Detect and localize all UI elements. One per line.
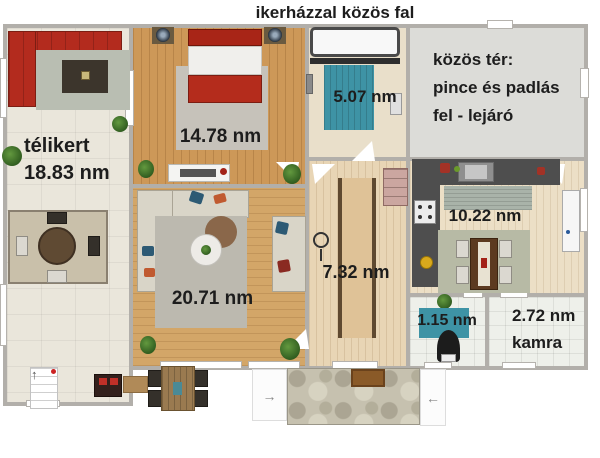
- window: [0, 284, 7, 346]
- common-space-line3: fel - lejáró: [433, 102, 560, 130]
- bed-blanket: [188, 75, 262, 103]
- door-gap: [580, 68, 589, 98]
- pillow: [142, 246, 154, 256]
- window: [580, 188, 588, 232]
- door-gap: [487, 20, 513, 29]
- pillow: [277, 259, 291, 273]
- chair: [47, 270, 67, 283]
- plant-icon: [138, 160, 154, 178]
- fridge: [562, 190, 580, 252]
- stairs-marker: [51, 369, 56, 374]
- winter-garden-area: 18.83 nm: [24, 160, 110, 187]
- walkway-right: ←: [420, 369, 446, 426]
- winter-garden-label: télikert 18.83 nm: [24, 133, 110, 187]
- door-swing: [312, 164, 335, 187]
- pantry-name: kamra: [512, 329, 575, 356]
- speaker-icon: [268, 28, 282, 42]
- runner-rug: [338, 178, 376, 338]
- pantry-area: 2.72 nm: [512, 302, 575, 329]
- common-space-label: közös tér: pince és padlás fel - lejáró: [433, 46, 560, 130]
- laptop-icon: [180, 169, 216, 177]
- bedroom-area-label: 14.78 nm: [173, 126, 268, 148]
- grill-food: [110, 378, 118, 385]
- window: [502, 362, 536, 369]
- plant-icon: [2, 146, 22, 166]
- toilet-base: [441, 354, 456, 362]
- bathroom-area-label: 5.07 nm: [325, 87, 405, 107]
- plant-icon: [140, 336, 156, 354]
- table-decor: [81, 71, 90, 80]
- side-table: [123, 376, 148, 393]
- outdoor-table-decor: [173, 382, 182, 395]
- red-corner-sofa-arm: [8, 31, 36, 107]
- plant-icon: [280, 338, 300, 360]
- stove: [414, 200, 436, 224]
- grill-food: [99, 378, 107, 385]
- shared-wall-label: ikerházzal közös fal: [243, 3, 427, 23]
- common-space-line1: közös tér:: [433, 46, 560, 74]
- coat-stand-icon: [313, 232, 329, 248]
- stove-burners: [418, 205, 422, 209]
- outdoor-chair: [194, 370, 208, 387]
- chair: [88, 236, 100, 256]
- arrow-up-icon: ↑: [31, 368, 38, 381]
- chair: [499, 240, 512, 258]
- chair: [499, 266, 512, 284]
- radiator: [306, 74, 313, 94]
- table-decor: [481, 258, 487, 268]
- fruit: [454, 166, 460, 172]
- bathtub: [310, 27, 400, 57]
- kitchen-area-label: 10.22 nm: [440, 206, 530, 226]
- round-table: [38, 227, 76, 265]
- pot: [537, 167, 545, 175]
- floor-plan: ikerházzal közös fal: [0, 0, 600, 458]
- plant-icon: [437, 294, 452, 309]
- pillow: [275, 221, 289, 235]
- plant-icon: [112, 116, 128, 132]
- speaker-icon: [156, 28, 170, 42]
- common-space-line2: pince és padlás: [433, 74, 560, 102]
- chair: [16, 236, 28, 256]
- pot: [440, 163, 450, 173]
- outdoor-chair: [194, 390, 208, 407]
- arrow-right-icon: →: [263, 388, 277, 404]
- window: [424, 362, 452, 369]
- doormat: [351, 369, 385, 387]
- winter-garden-name: télikert: [24, 133, 110, 160]
- chair: [47, 212, 67, 224]
- window: [0, 58, 7, 118]
- bed-pillows: [188, 29, 262, 46]
- desk-chair: [220, 168, 227, 175]
- chair: [456, 240, 469, 258]
- bed-sheet: [188, 46, 262, 75]
- outdoor-chair: [148, 370, 162, 387]
- chair: [456, 266, 469, 284]
- outdoor-chair: [148, 390, 162, 407]
- fridge-decor: [566, 230, 570, 234]
- plant-icon: [283, 164, 301, 184]
- sink-basin: [465, 165, 487, 179]
- bowl: [420, 256, 433, 269]
- coat-stand-icon: [320, 249, 322, 261]
- living-area-label: 20.71 nm: [165, 288, 260, 310]
- pillow: [144, 268, 155, 277]
- dresser: [383, 168, 408, 206]
- hallway-area-label: 7.32 nm: [314, 262, 398, 283]
- walkway-left: →: [252, 369, 287, 421]
- bathtub-ledge: [310, 58, 400, 64]
- plant-icon: [201, 245, 211, 255]
- toilet-area-label: 1.15 nm: [411, 312, 483, 330]
- pantry-label: 2.72 nm kamra: [512, 302, 575, 356]
- door-swing: [352, 138, 375, 161]
- arrow-left-icon: ←: [426, 390, 440, 406]
